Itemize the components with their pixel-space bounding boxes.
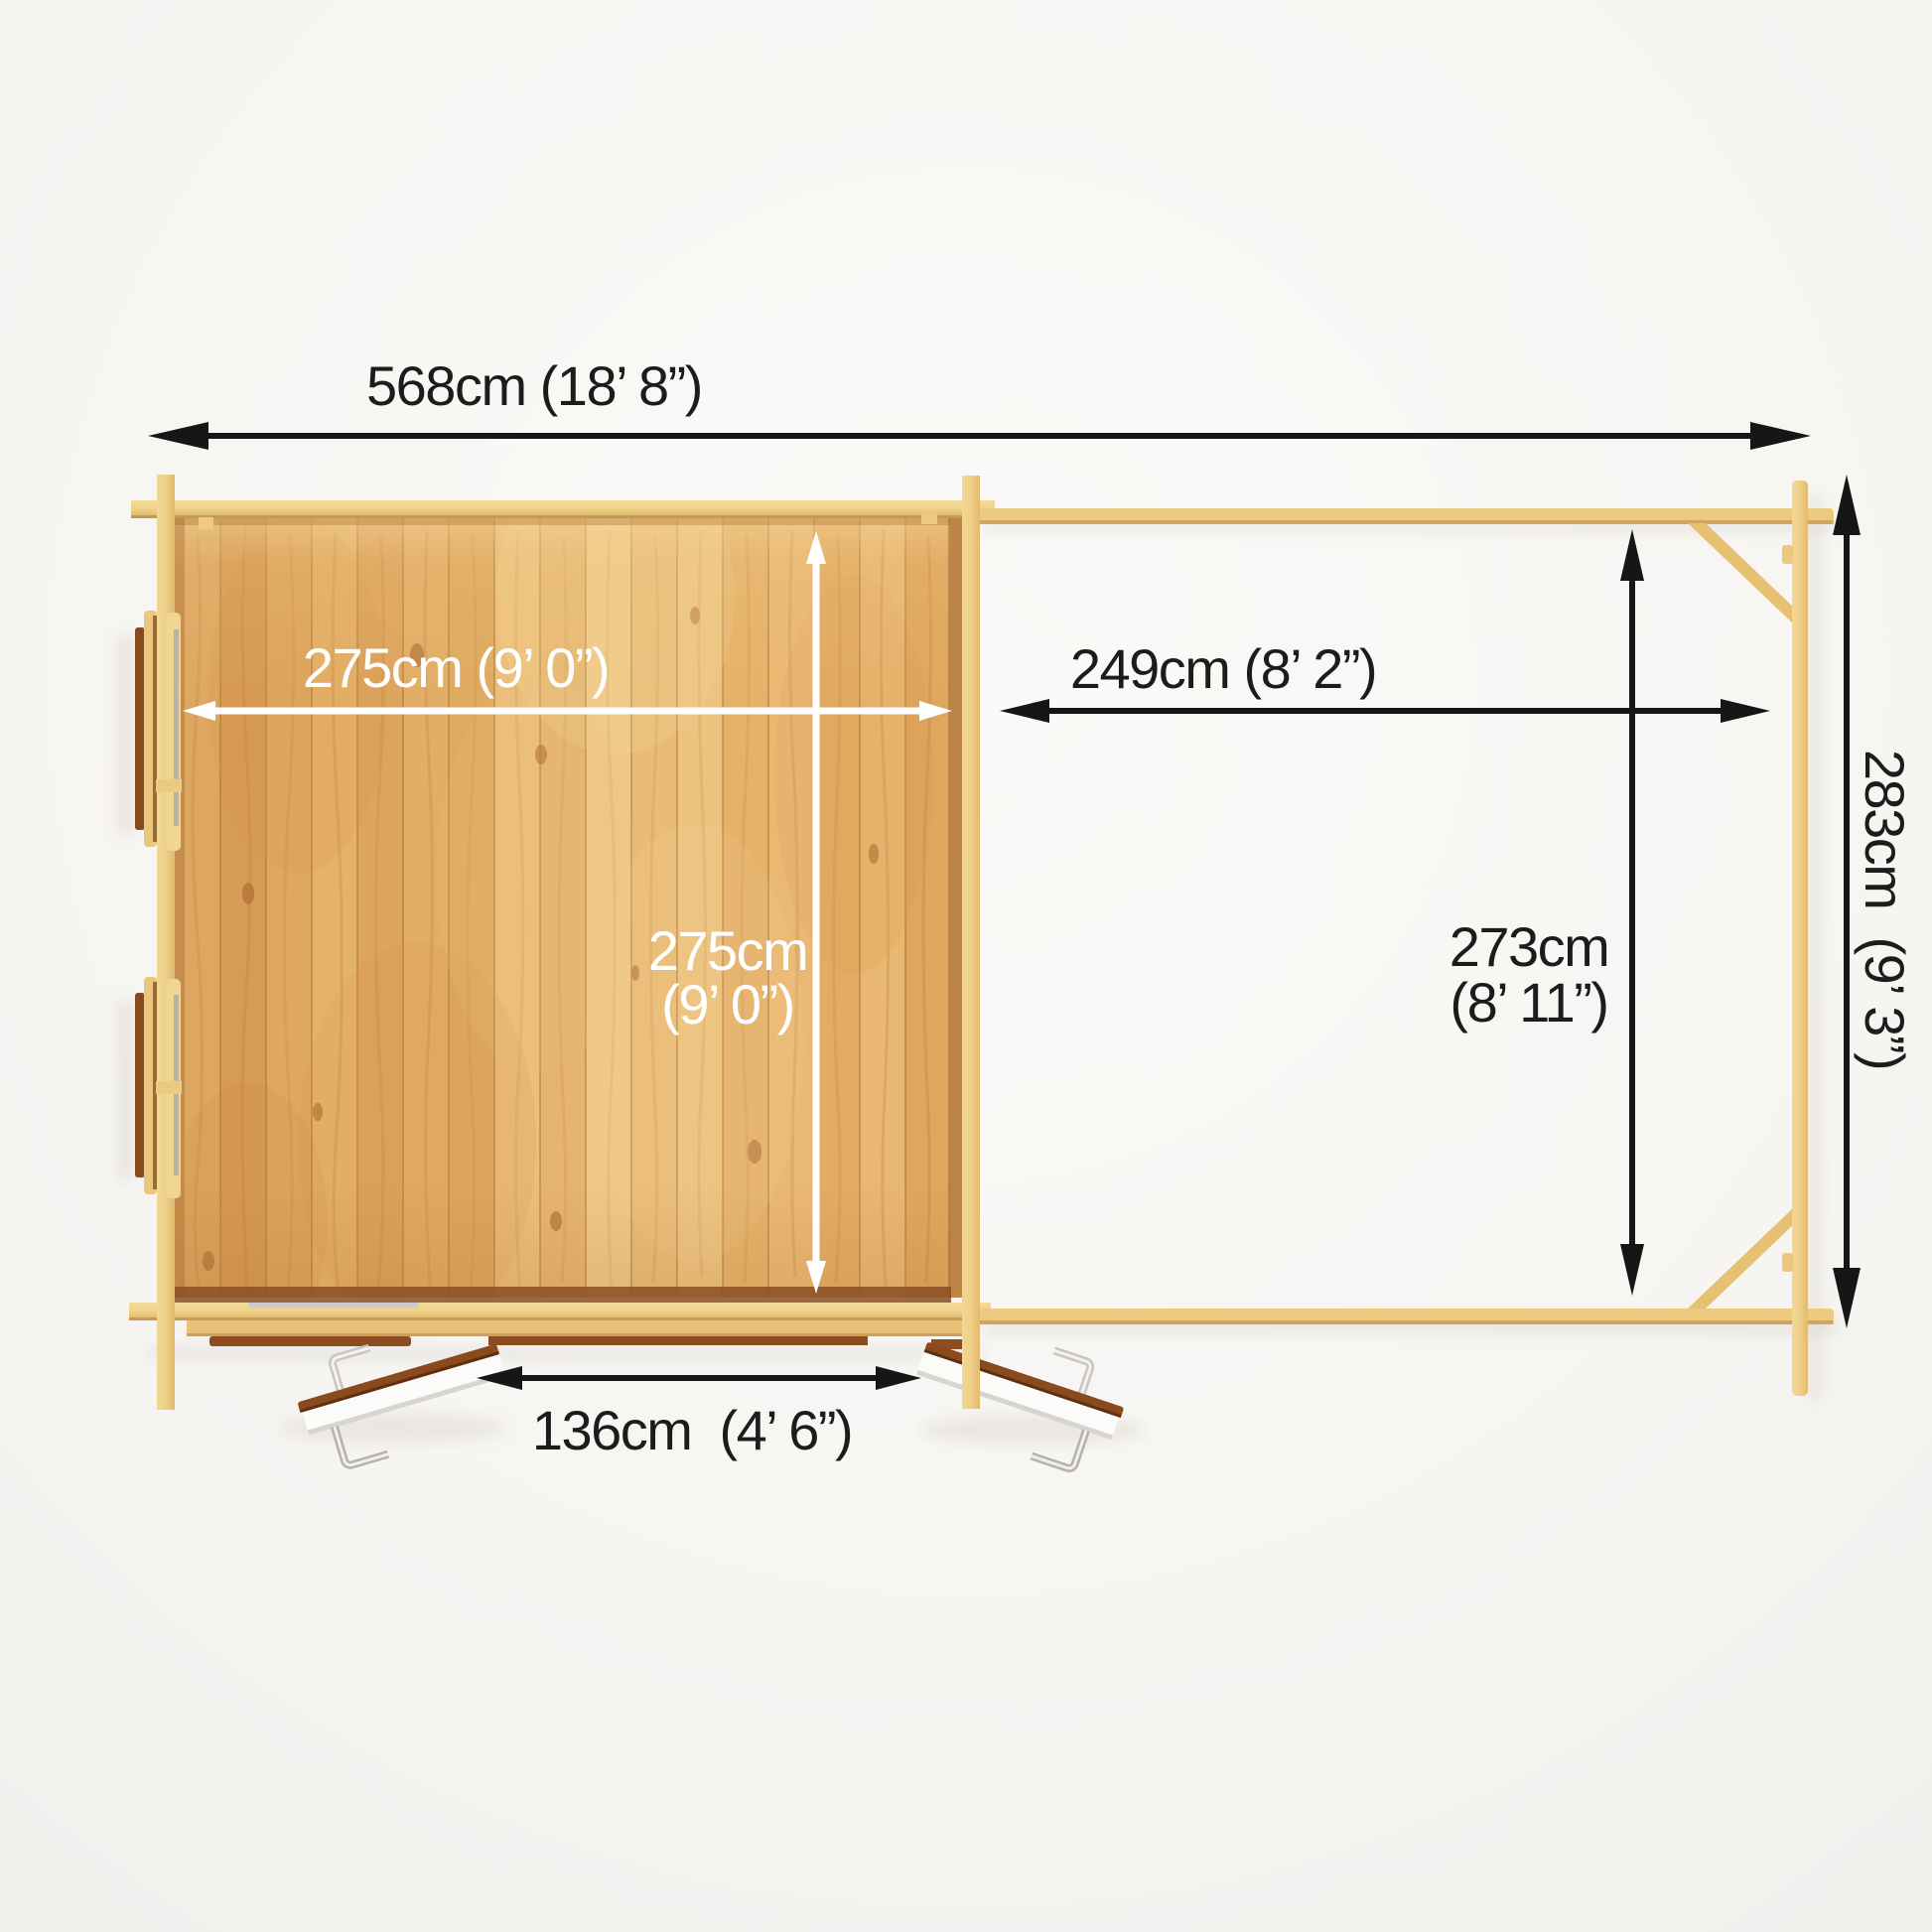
svg-text:283cm (9’ 3”): 283cm (9’ 3”) bbox=[1854, 750, 1916, 1069]
svg-text:273cm: 273cm bbox=[1449, 915, 1609, 978]
svg-text:568cm (18’ 8”): 568cm (18’ 8”) bbox=[366, 354, 702, 417]
svg-text:(8’ 11”): (8’ 11”) bbox=[1449, 971, 1607, 1034]
svg-text:(9’ 0”): (9’ 0”) bbox=[661, 973, 794, 1035]
svg-text:136cm (4’ 6”): 136cm (4’ 6”) bbox=[532, 1399, 852, 1461]
svg-text:249cm (8’ 2”): 249cm (8’ 2”) bbox=[1070, 637, 1376, 700]
svg-text:275cm (9’ 0”): 275cm (9’ 0”) bbox=[303, 636, 609, 699]
